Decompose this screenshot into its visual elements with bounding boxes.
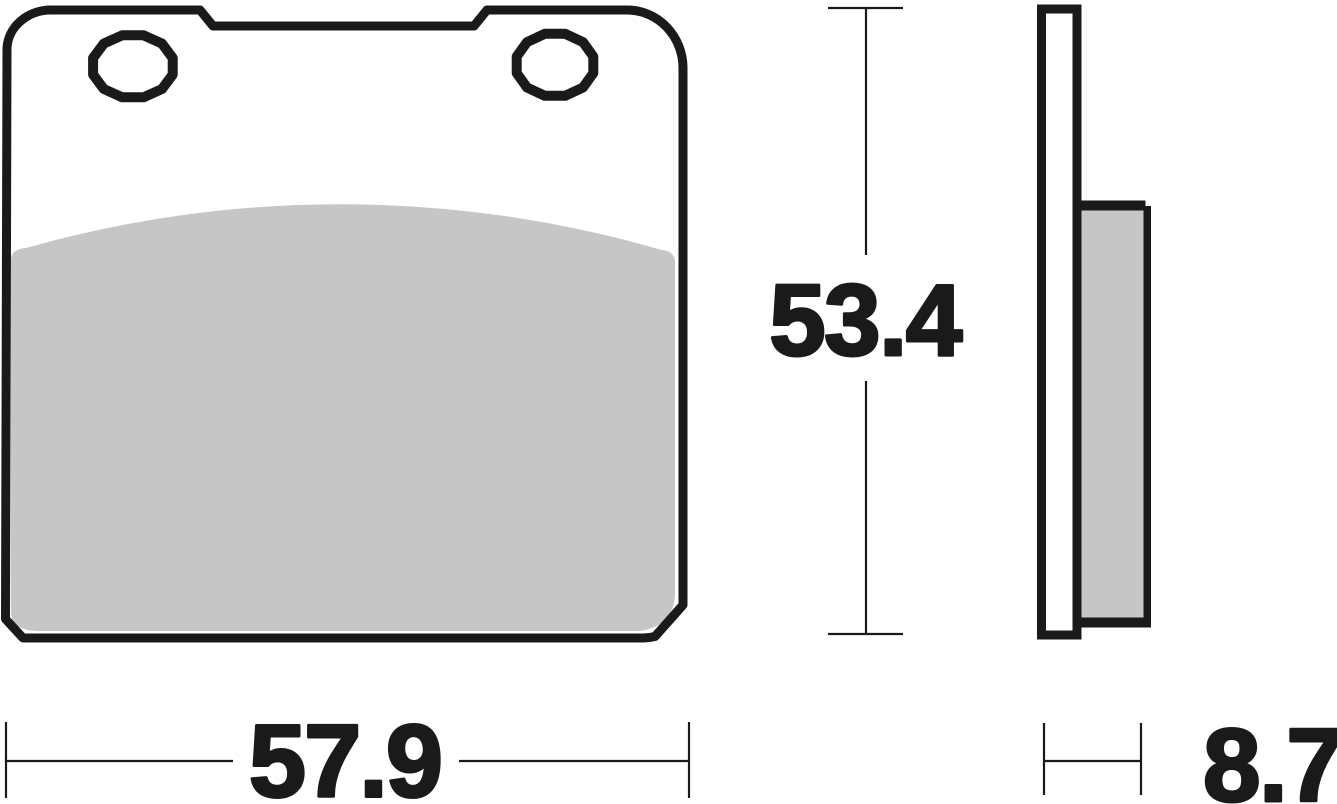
svg-text:57.9: 57.9 [249,704,441,804]
svg-text:8.7: 8.7 [1203,707,1337,804]
svg-text:53.4: 53.4 [769,263,962,377]
